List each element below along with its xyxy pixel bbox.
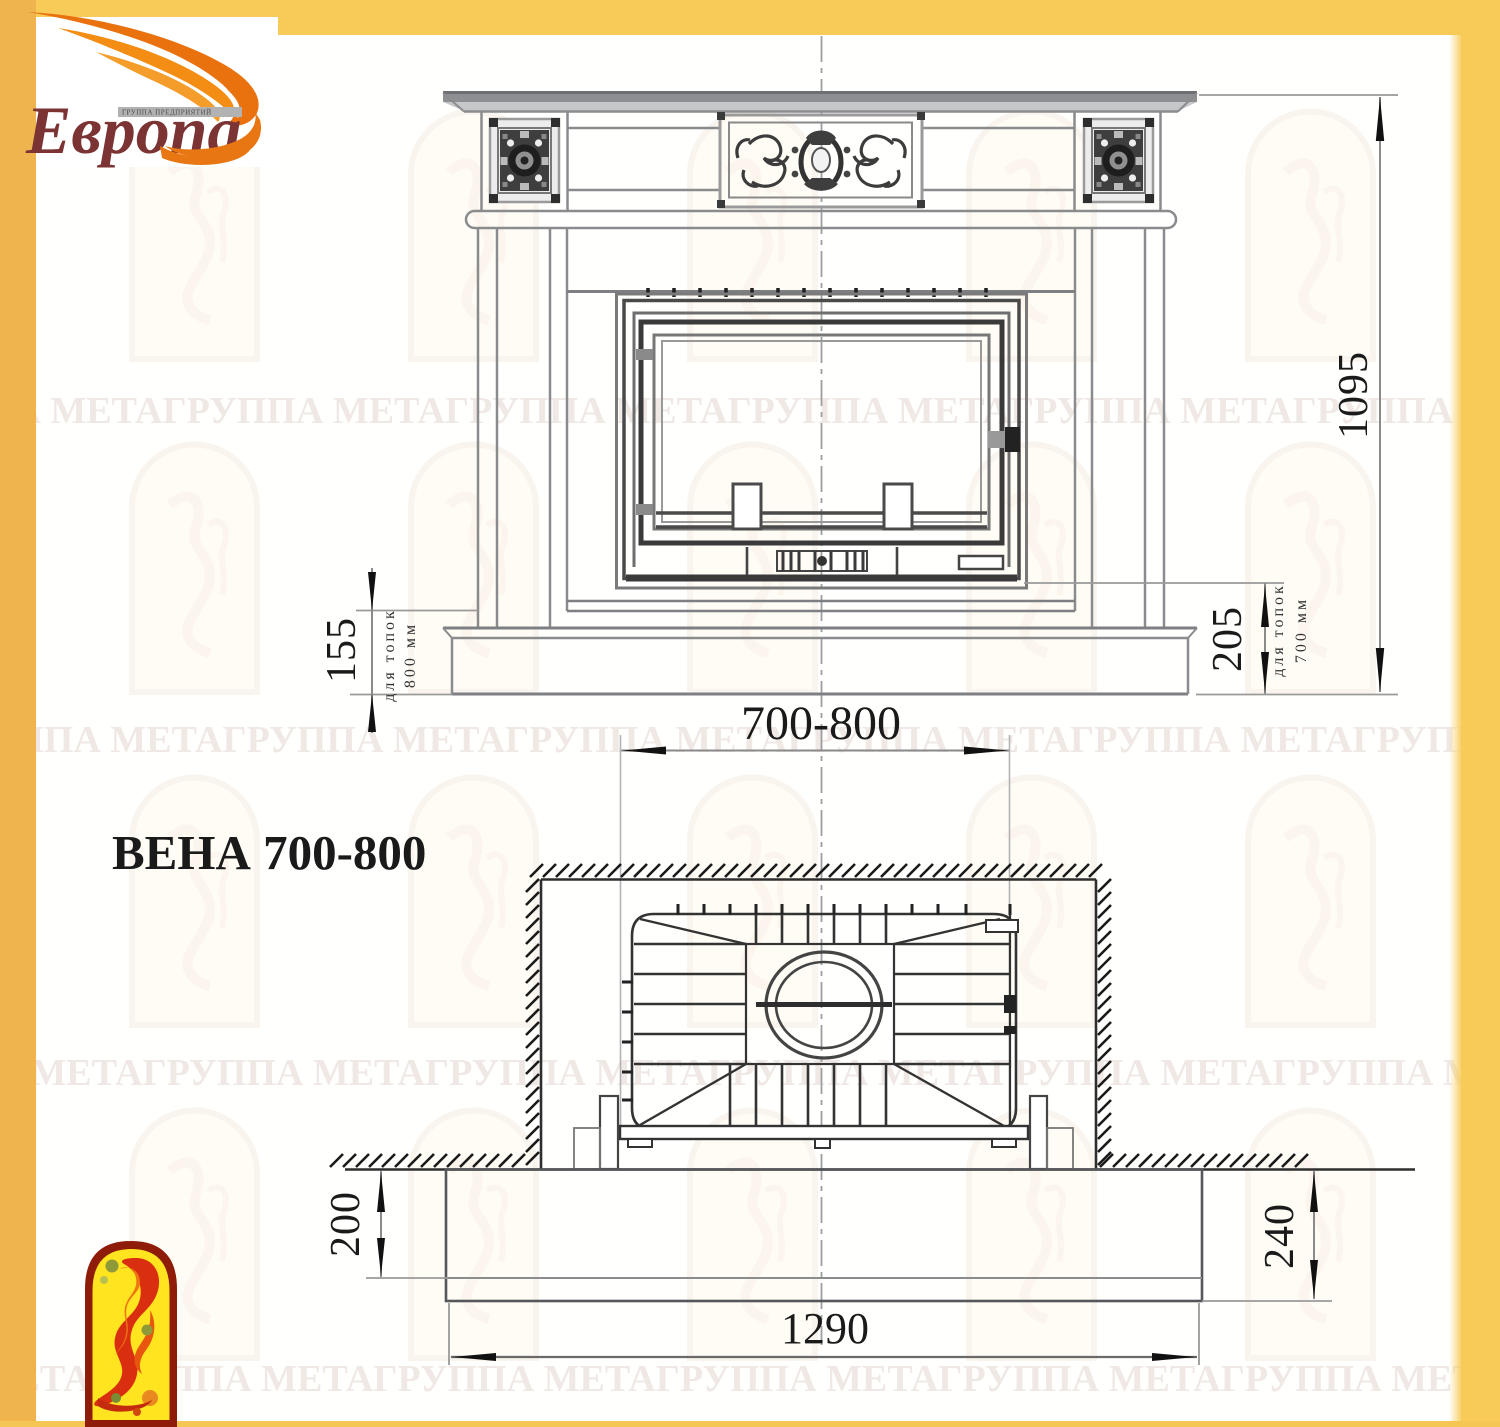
svg-text:ГРУППА МЕТАГРУППА МЕТАГРУППА М: ГРУППА МЕТАГРУППА МЕТАГРУППА МЕТАГРУППА …: [0, 390, 1500, 432]
svg-text:для топок: для топок: [381, 608, 398, 702]
svg-text:ЩА МЕТАГРУППА МЕТАГРУППА МЕТАГ: ЩА МЕТАГРУППА МЕТАГРУППА МЕТАГРУППА МЕТА…: [0, 1358, 1500, 1400]
svg-text:1290: 1290: [781, 1304, 869, 1353]
svg-text:155: 155: [319, 617, 365, 683]
svg-text:240: 240: [1257, 1203, 1303, 1269]
svg-text:1095: 1095: [1331, 351, 1377, 439]
svg-text:700 мм: 700 мм: [1293, 597, 1310, 663]
svg-text:ГРУППА МЕТАГРУППА МЕТАГРУППА М: ГРУППА МЕТАГРУППА МЕТАГРУППА МЕТАГРУППА …: [0, 1052, 1500, 1094]
svg-text:для топок: для топок: [1270, 583, 1287, 677]
svg-text:200: 200: [323, 1191, 369, 1257]
svg-text:205: 205: [1205, 606, 1251, 672]
svg-text:700-800: 700-800: [741, 697, 901, 750]
svg-text:800 мм: 800 мм: [402, 622, 419, 688]
svg-text:ВЕНА 700-800: ВЕНА 700-800: [112, 825, 426, 880]
